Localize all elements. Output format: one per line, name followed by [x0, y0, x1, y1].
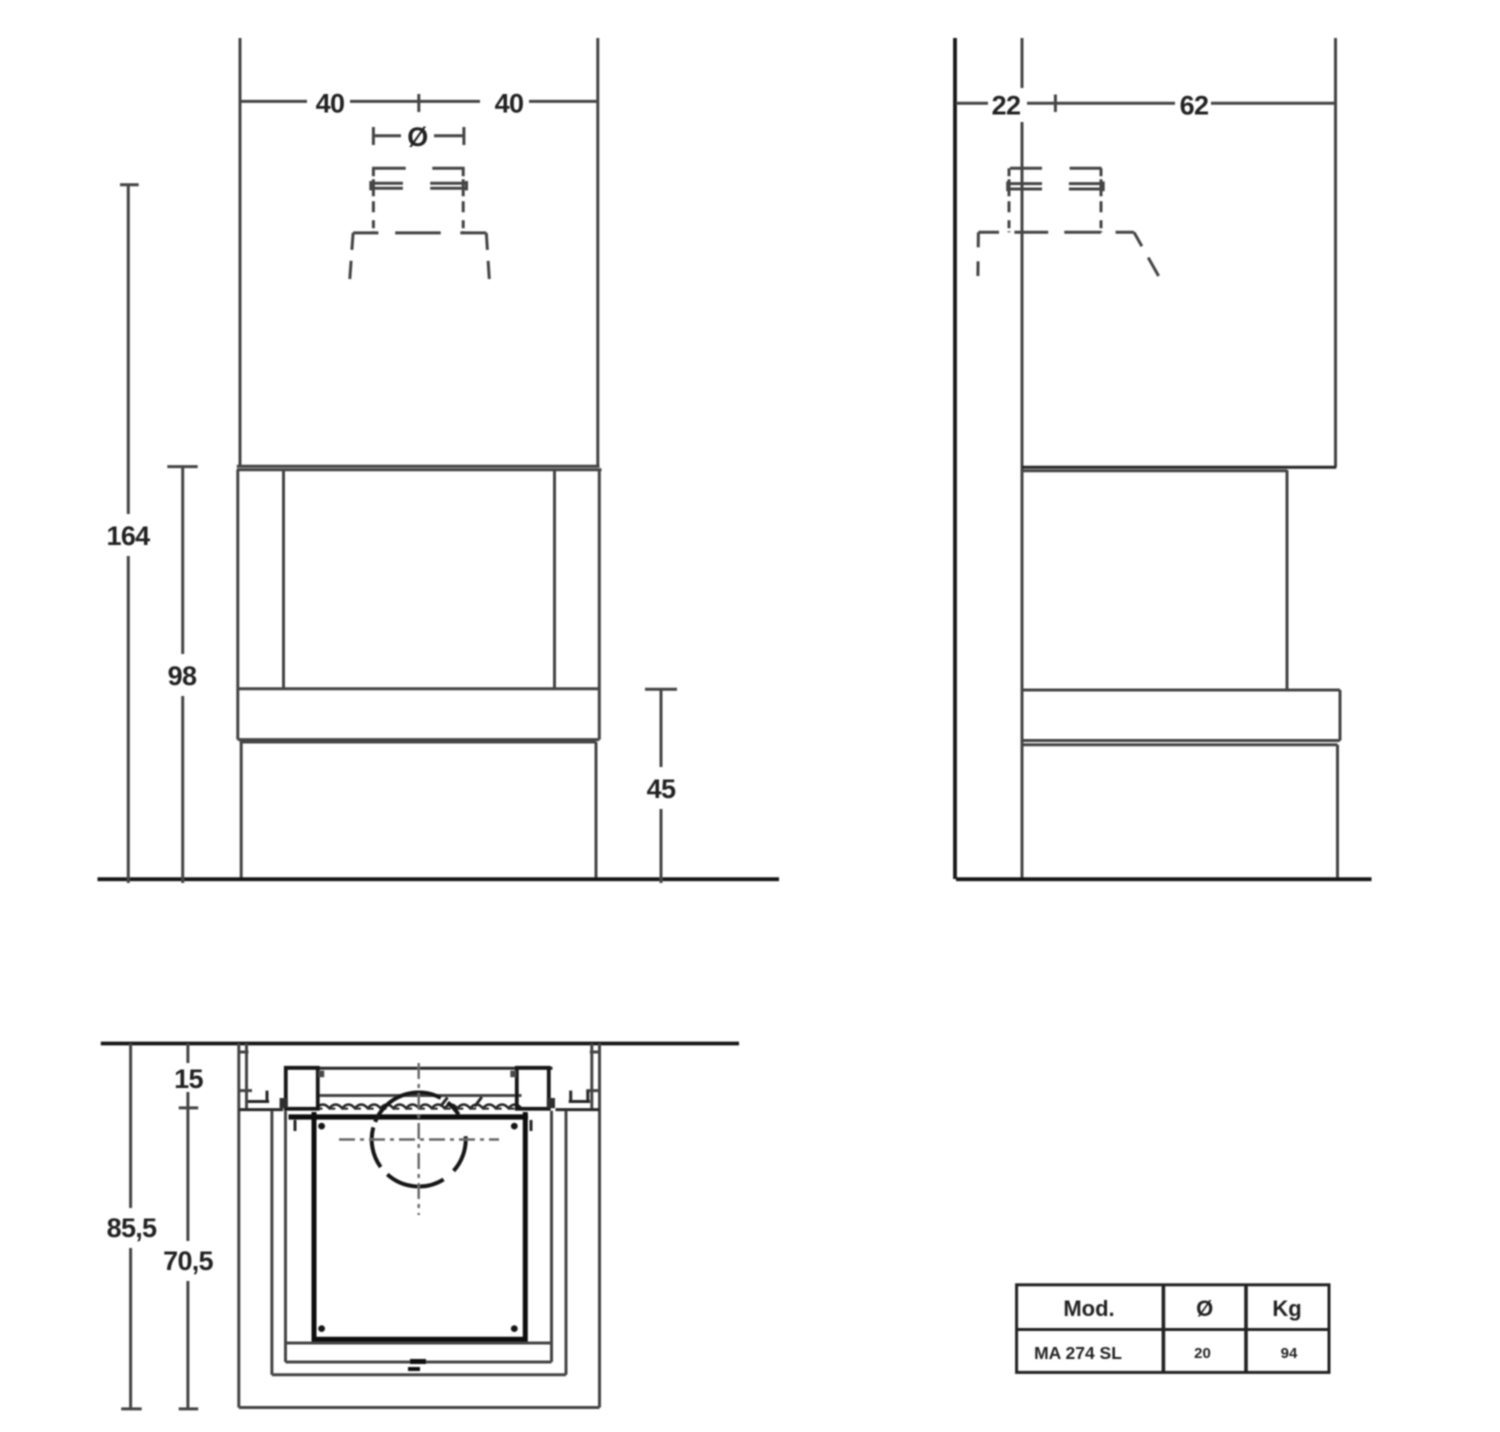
svg-text:98: 98 [168, 661, 197, 691]
svg-text:70,5: 70,5 [163, 1246, 213, 1276]
svg-text:164: 164 [107, 521, 151, 551]
svg-text:85,5: 85,5 [107, 1213, 157, 1243]
svg-text:MA 274 SL: MA 274 SL [1034, 1343, 1122, 1363]
svg-text:94: 94 [1281, 1345, 1298, 1362]
svg-text:62: 62 [1180, 91, 1209, 121]
svg-text:15: 15 [174, 1064, 203, 1094]
svg-text:20: 20 [1194, 1345, 1211, 1362]
svg-text:45: 45 [647, 774, 676, 804]
svg-text:Kg: Kg [1272, 1296, 1301, 1321]
svg-text:Ø: Ø [407, 122, 427, 152]
svg-text:40: 40 [316, 89, 345, 119]
svg-text:Mod.: Mod. [1063, 1296, 1114, 1321]
svg-text:Ø: Ø [1196, 1296, 1213, 1321]
svg-text:40: 40 [495, 89, 524, 119]
svg-text:22: 22 [992, 91, 1021, 121]
